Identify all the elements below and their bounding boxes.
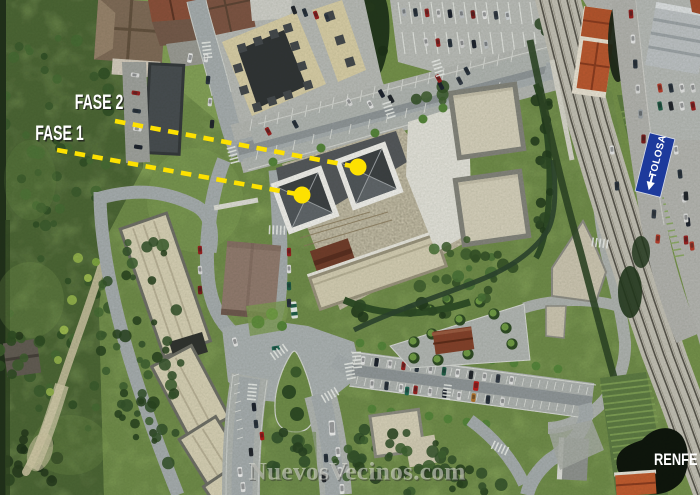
svg-text:FASE 1: FASE 1 <box>35 121 83 145</box>
svg-text:NuevosVecinos.com: NuevosVecinos.com <box>248 457 465 486</box>
svg-text:RENFE: RENFE <box>654 452 698 470</box>
svg-text:FASE 2: FASE 2 <box>75 90 123 114</box>
